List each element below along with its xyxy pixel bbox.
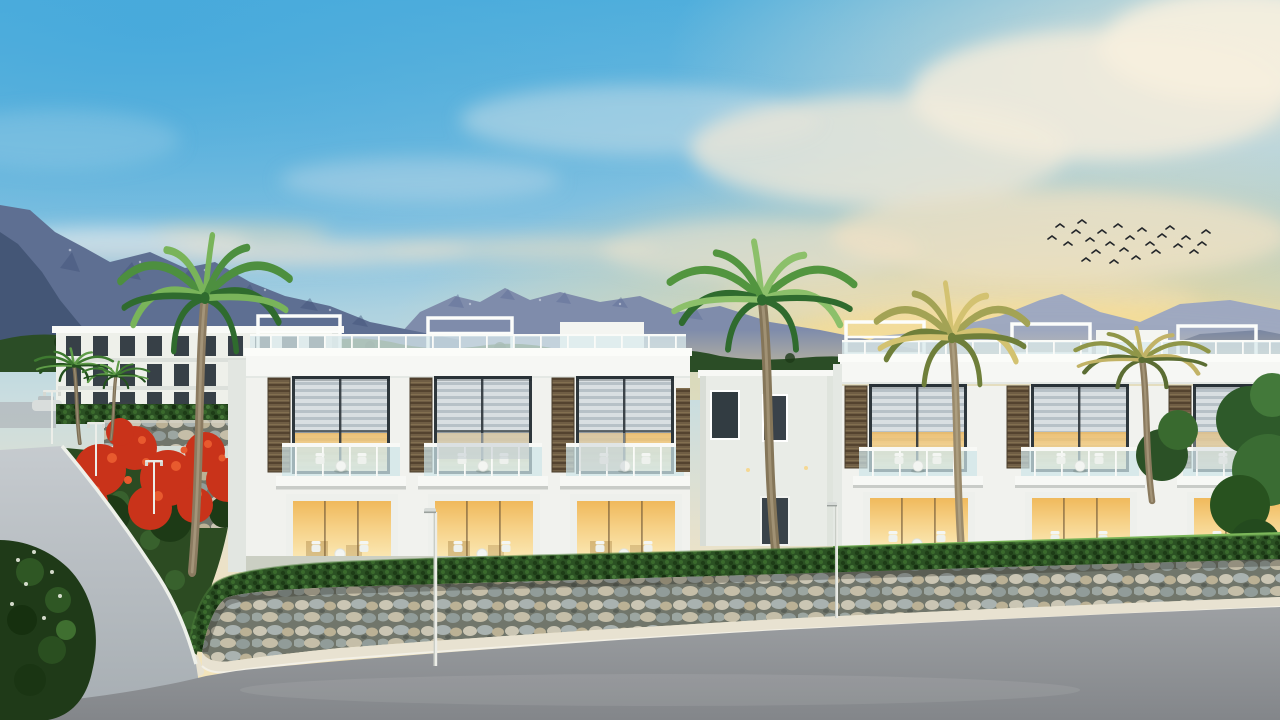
roof-slab-right [838, 354, 1280, 362]
corner-louver [676, 388, 690, 472]
townhouse-block-left [228, 316, 692, 572]
road-sheen [240, 674, 1080, 706]
roof-balustrade-posts-right [842, 342, 1280, 354]
unit-5 [1007, 384, 1145, 556]
unit-2-dim-overlay [437, 433, 529, 459]
townhouse-block-right [833, 322, 1280, 566]
roof-slab [244, 348, 692, 356]
middle-window-1 [712, 392, 738, 438]
middle-left-shade [700, 376, 706, 546]
scene-canvas: Sunset architectural rendering of a mode… [0, 0, 1280, 720]
fascia [246, 356, 690, 378]
wall-sconce-1 [746, 468, 750, 472]
unit-2 [410, 376, 548, 568]
unit-3-dim-overlay [579, 433, 625, 471]
block-left-side [228, 360, 246, 572]
roof-balustrade-posts [250, 336, 686, 348]
unit-3 [552, 376, 690, 568]
wall-sconce-2 [804, 466, 808, 470]
fascia-right [840, 362, 1280, 384]
unit-1 [268, 376, 406, 568]
architectural-rendering: Sunset architectural rendering of a mode… [0, 0, 1280, 720]
middle-right-shade [827, 376, 833, 546]
